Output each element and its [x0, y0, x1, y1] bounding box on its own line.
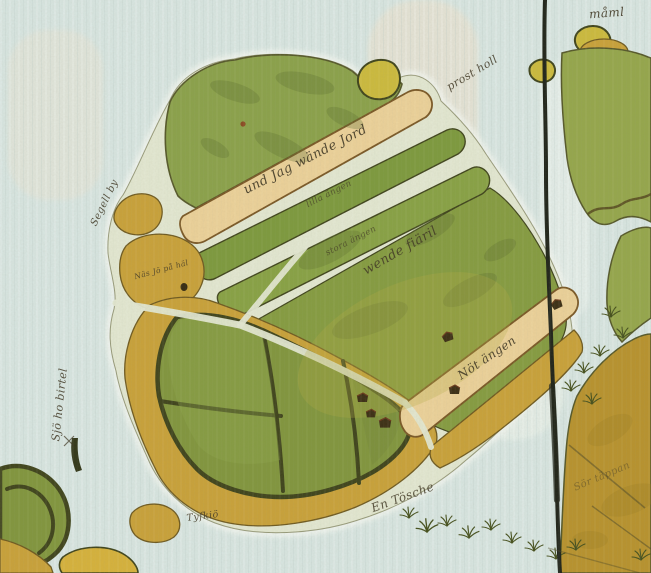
map-scan: måml prost holl und Jag wände Jord lilla… [0, 0, 651, 573]
map-canvas: måml prost holl und Jag wände Jord lilla… [0, 0, 651, 573]
texture-paper-grain [0, 0, 651, 573]
